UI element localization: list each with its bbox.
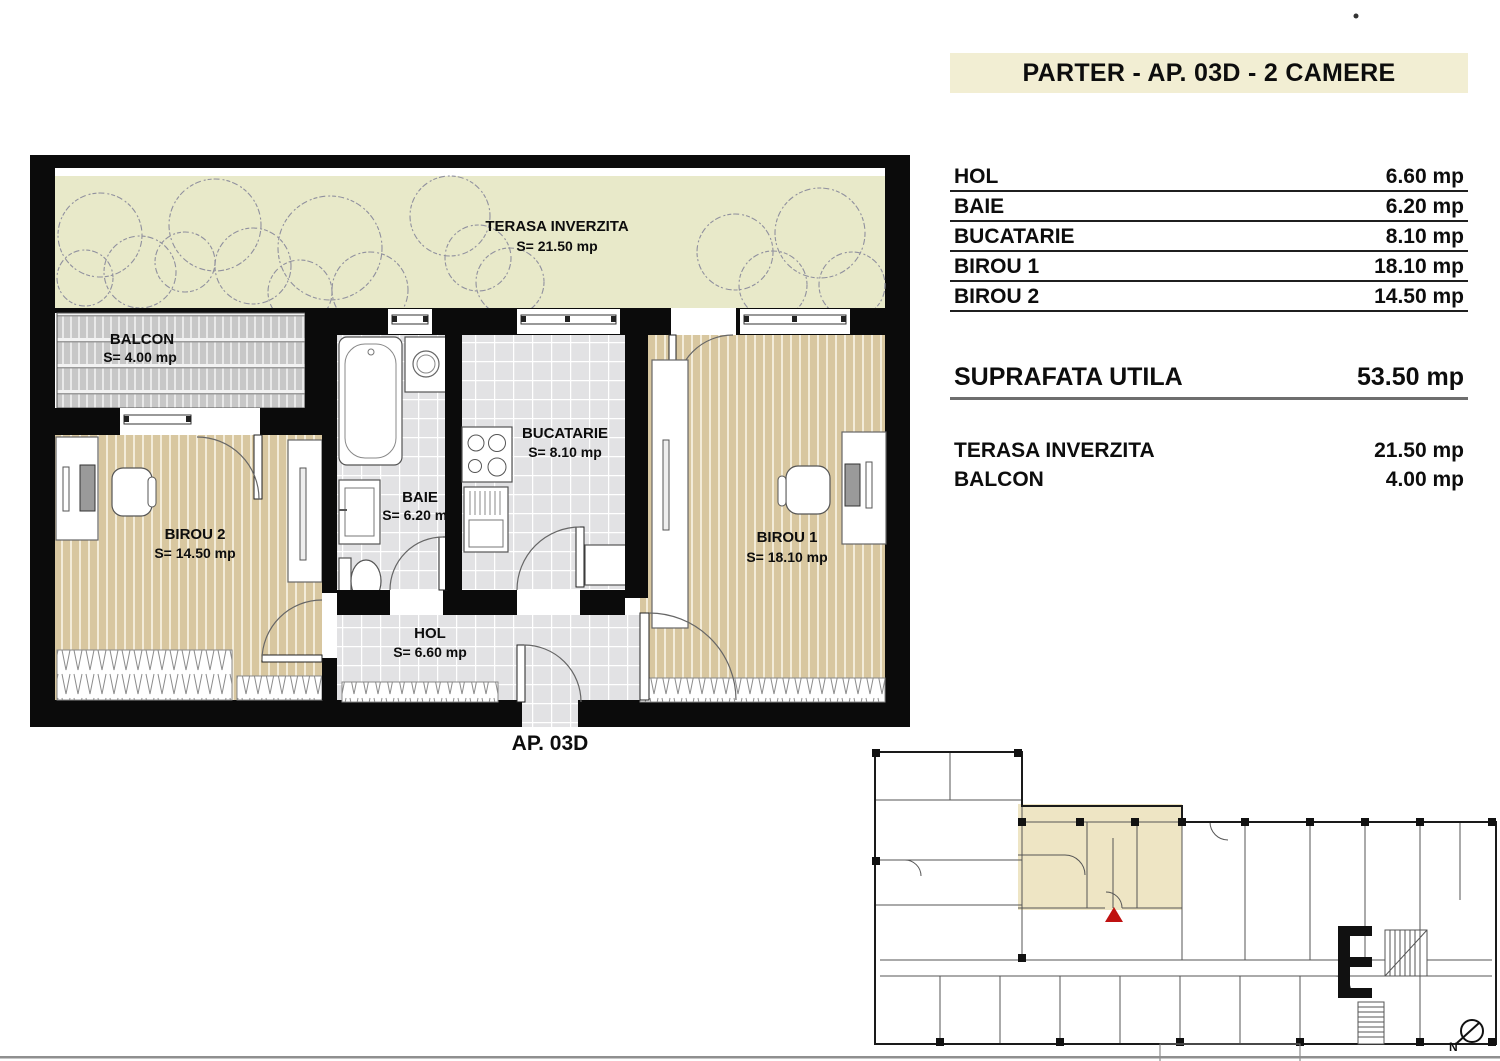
table-row: BUCATARIE 8.10 mp xyxy=(950,222,1468,252)
room-balcon: BALCON S= 4.00 mp xyxy=(57,313,305,408)
info-panel: PARTER - AP. 03D - 2 CAMERE HOL 6.60 mp … xyxy=(950,53,1468,492)
core-wall xyxy=(1338,926,1372,998)
chair xyxy=(112,468,156,516)
row-value: 8.10 mp xyxy=(1386,225,1464,249)
staircase xyxy=(1385,930,1427,976)
table-row: HOL 6.60 mp xyxy=(950,162,1468,192)
door-opening xyxy=(195,408,260,435)
row-value: 6.60 mp xyxy=(1386,165,1464,189)
window xyxy=(388,309,432,334)
bottom-rule xyxy=(0,1056,1500,1059)
area-table: HOL 6.60 mp BAIE 6.20 mp BUCATARIE 8.10 … xyxy=(950,162,1468,312)
room-area: S= 6.20 mp xyxy=(382,507,456,523)
room-area: S= 6.60 mp xyxy=(393,644,467,660)
balcony-wall xyxy=(55,408,305,435)
table-row: BAIE 6.20 mp xyxy=(950,192,1468,222)
door-opening xyxy=(671,308,736,335)
room-label: BIROU 1 xyxy=(757,529,818,546)
room-label: BAIE xyxy=(402,489,438,506)
room-birou1: BIROU 1 S= 18.10 mp xyxy=(640,335,886,702)
wardrobe xyxy=(288,440,322,582)
table-row: BIROU 2 14.50 mp xyxy=(950,282,1468,312)
extra-label: BALCON xyxy=(954,468,1044,492)
room-label: BUCATARIE xyxy=(522,425,608,442)
kitchen-furniture xyxy=(585,545,627,585)
room-label: BIROU 2 xyxy=(165,526,226,543)
row-label: BAIE xyxy=(954,195,1004,219)
row-label: HOL xyxy=(954,165,998,189)
extra-label: TERASA INVERZITA xyxy=(954,439,1155,463)
row-label: BIROU 1 xyxy=(954,255,1039,279)
room-area: S= 18.10 mp xyxy=(746,549,827,565)
external-staircase xyxy=(1358,1002,1384,1044)
page-title: PARTER - AP. 03D - 2 CAMERE xyxy=(950,53,1468,93)
sink xyxy=(339,480,380,544)
window xyxy=(740,309,850,334)
window xyxy=(517,309,620,334)
radiator xyxy=(237,676,322,700)
apartment-label: AP. 03D xyxy=(512,732,589,755)
compass-icon: N xyxy=(1449,1020,1483,1054)
apartment-plan: TERASA INVERZITA S= 21.50 mp xyxy=(30,155,910,755)
extra-value: 4.00 mp xyxy=(1386,468,1464,492)
room-area: S= 14.50 mp xyxy=(154,545,235,561)
room-area: S= 21.50 mp xyxy=(516,238,597,254)
monitor-icon xyxy=(63,467,69,511)
stove xyxy=(462,427,512,482)
monitor-icon xyxy=(866,462,872,508)
room-label: HOL xyxy=(414,625,446,642)
extra-row: BALCON 4.00 mp xyxy=(950,463,1468,492)
door-opening xyxy=(322,593,337,658)
highlighted-apartment xyxy=(1018,804,1182,910)
row-value: 14.50 mp xyxy=(1374,285,1464,309)
bathtub xyxy=(339,337,402,465)
building-key-plan: N xyxy=(872,749,1496,1061)
stray-dot xyxy=(1354,14,1359,19)
radiator xyxy=(57,650,232,700)
radiator xyxy=(640,678,885,702)
key-plan-partitions xyxy=(875,752,1492,1044)
desk xyxy=(842,432,886,544)
door-opening xyxy=(390,590,443,615)
summary-row: SUPRAFATA UTILA 53.50 mp xyxy=(950,358,1468,400)
room-area: S= 4.00 mp xyxy=(103,349,177,365)
room-label: BALCON xyxy=(110,331,174,348)
radiator xyxy=(342,682,498,702)
extra-areas: TERASA INVERZITA 21.50 mp BALCON 4.00 mp xyxy=(950,434,1468,492)
room-terasa: TERASA INVERZITA S= 21.50 mp xyxy=(55,168,885,328)
extra-row: TERASA INVERZITA 21.50 mp xyxy=(950,434,1468,463)
pc-tower-icon xyxy=(845,464,860,506)
room-bucatarie: BUCATARIE S= 8.10 mp xyxy=(462,335,627,590)
room-label: TERASA INVERZITA xyxy=(485,218,629,235)
desk xyxy=(56,437,98,540)
window xyxy=(120,408,195,435)
row-label: BIROU 2 xyxy=(954,285,1039,309)
key-plan-outline xyxy=(875,752,1496,1044)
room-area: S= 8.10 mp xyxy=(528,444,602,460)
door-opening xyxy=(517,590,580,615)
washing-machine xyxy=(405,337,448,392)
table-row: BIROU 1 18.10 mp xyxy=(950,252,1468,282)
entry-opening xyxy=(522,700,578,727)
key-plan-columns xyxy=(872,749,1496,1046)
north-label: N xyxy=(1449,1040,1458,1054)
extra-value: 21.50 mp xyxy=(1374,439,1464,463)
kitchen-cabinet xyxy=(464,487,508,552)
summary-value: 53.50 mp xyxy=(1357,363,1464,392)
row-label: BUCATARIE xyxy=(954,225,1075,249)
wardrobe xyxy=(652,360,688,628)
pc-tower-icon xyxy=(80,465,95,511)
row-value: 18.10 mp xyxy=(1374,255,1464,279)
summary-label: SUPRAFATA UTILA xyxy=(954,363,1183,392)
row-value: 6.20 mp xyxy=(1386,195,1464,219)
